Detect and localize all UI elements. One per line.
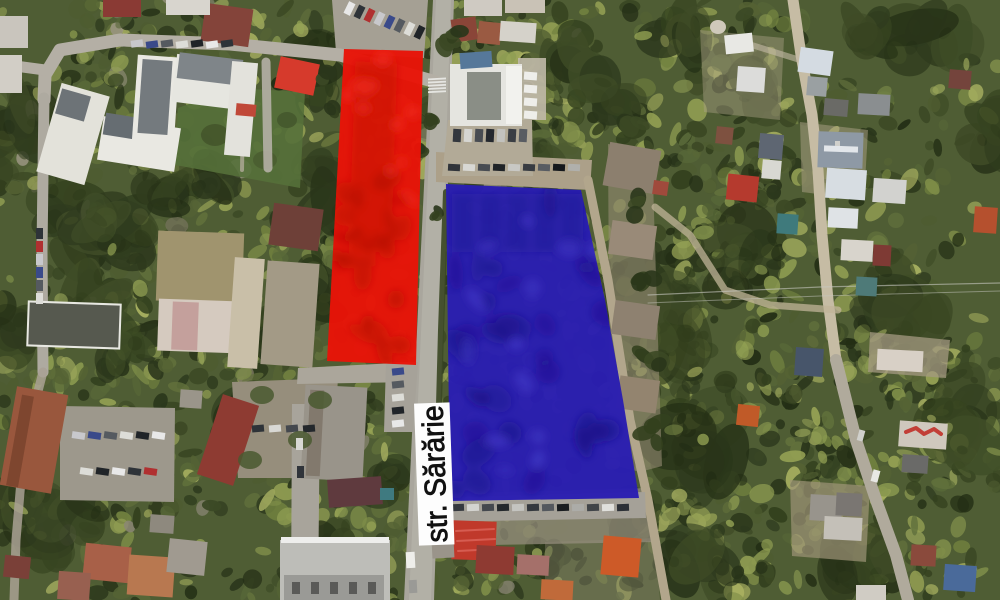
svg-text:str. Sărărie: str. Sărărie: [417, 405, 455, 543]
